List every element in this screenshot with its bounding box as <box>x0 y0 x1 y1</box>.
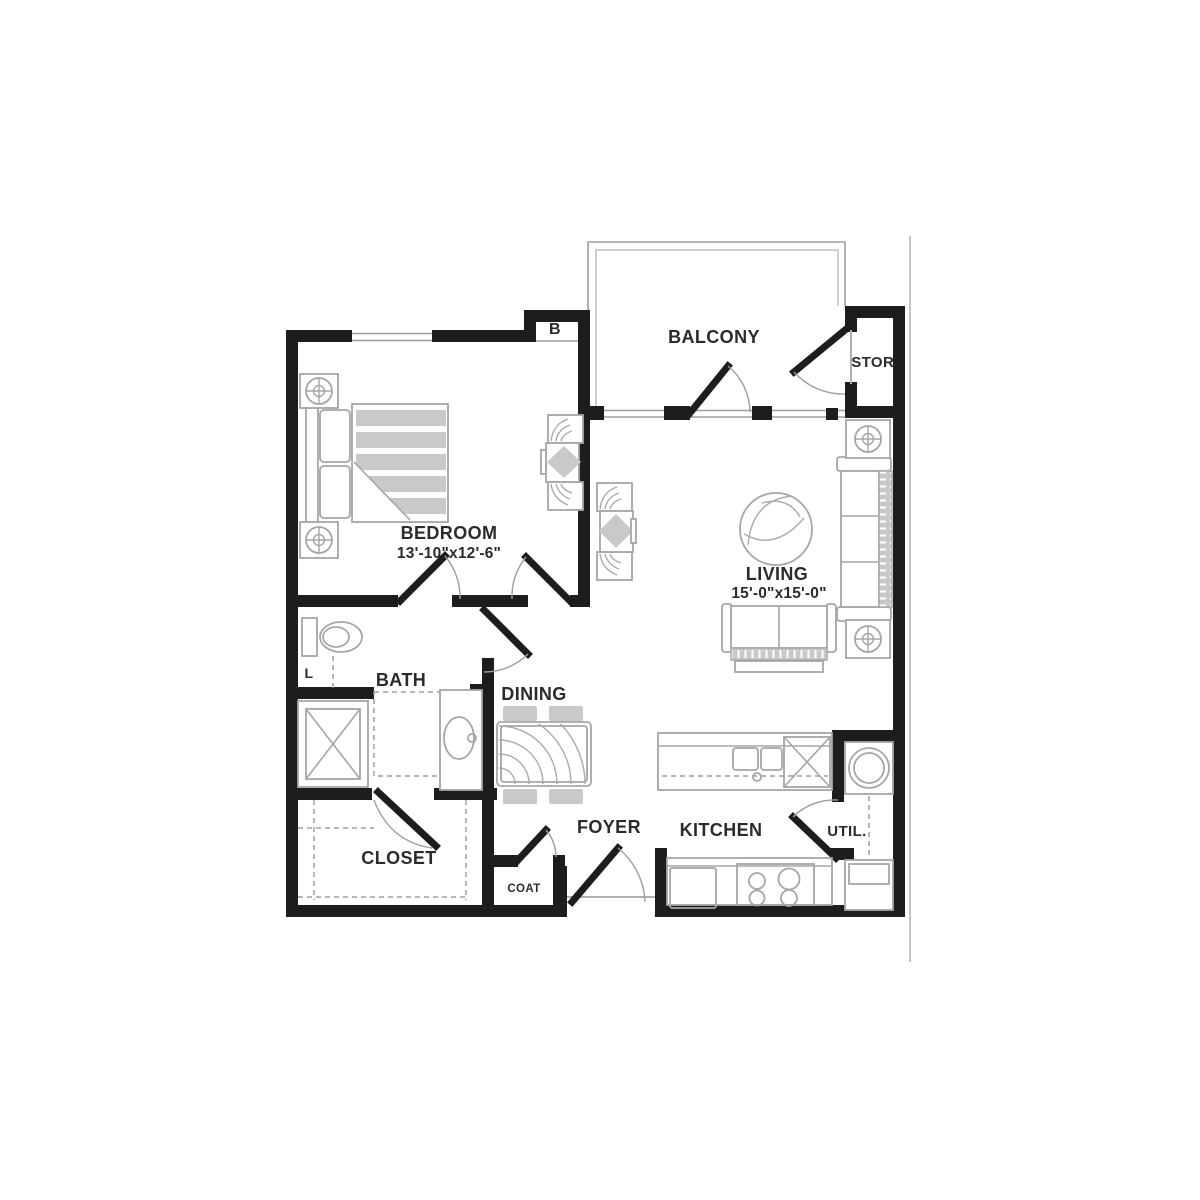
left-exterior-wall <box>286 330 298 917</box>
balcony-door <box>690 366 750 413</box>
bath-dashed-area <box>374 692 440 776</box>
bed-pillow <box>320 410 350 462</box>
lamp-icon <box>306 527 332 553</box>
lamp-icon <box>855 426 881 452</box>
round-side-table <box>740 493 812 565</box>
bedroom-dimensions: 13'-10"x12'-6" <box>397 545 501 562</box>
toilet-tank <box>302 618 317 656</box>
lamp-icon <box>306 378 332 404</box>
loveseat-tufting <box>731 648 827 660</box>
nightstand-bottom <box>300 522 338 558</box>
utility-top-wall <box>832 730 905 742</box>
bedroom-door-left <box>400 556 460 601</box>
dining-chair <box>549 789 583 804</box>
floor-plan-svg: B BALCONY STOR. BEDROOM 13'-10"x12'-6" L… <box>0 0 1200 1200</box>
unit-label: B <box>549 321 561 338</box>
balcony-label: BALCONY <box>668 327 760 347</box>
washer <box>845 742 893 794</box>
entry-door <box>572 848 645 902</box>
living-dimensions: 15'-0"x15'-0" <box>731 585 826 602</box>
end-table-top <box>846 420 890 458</box>
bed-pillow <box>320 466 350 518</box>
sofa-back-tufting <box>879 471 892 607</box>
living-armchair <box>597 483 636 580</box>
living-label: LIVING <box>746 564 808 584</box>
bedroom-label: BEDROOM <box>401 523 498 543</box>
floor-plan-page: B BALCONY STOR. BEDROOM 13'-10"x12'-6" L… <box>0 0 1200 1200</box>
bed-headboard <box>306 404 318 522</box>
dining-label: DINING <box>501 684 566 704</box>
coat-label: COAT <box>507 883 540 895</box>
lamp-icon <box>855 626 881 652</box>
utility-label: UTIL. <box>827 823 867 840</box>
loveseat <box>722 604 836 672</box>
end-table-bottom <box>846 620 890 658</box>
toilet-bowl <box>320 622 362 652</box>
nightstand-top <box>300 374 338 408</box>
foyer-label: FOYER <box>577 817 641 837</box>
dining-chair <box>503 789 537 804</box>
right-exterior-wall <box>893 306 905 917</box>
storage-label: STOR. <box>851 354 899 371</box>
kitchen-label: KITCHEN <box>680 820 763 840</box>
linen-label: L <box>305 665 314 681</box>
bath-label: BATH <box>376 670 426 690</box>
closet-door <box>374 792 436 848</box>
sofa-right <box>837 457 892 621</box>
dining-set <box>497 698 591 804</box>
dryer <box>845 860 893 910</box>
closet-right-wall <box>482 658 494 917</box>
storage-door <box>794 330 845 394</box>
dining-table <box>497 722 591 786</box>
sofa-armrest <box>837 607 891 621</box>
sofa-armrest <box>837 457 891 471</box>
dining-chair <box>549 706 583 721</box>
bedroom-armchair <box>541 415 583 510</box>
bath-fixtures <box>298 618 482 790</box>
coat-door <box>518 830 556 860</box>
bottom-wall-left <box>286 905 567 917</box>
bedroom-door-right <box>512 557 570 601</box>
living-window-wall <box>590 408 845 418</box>
dining-chair <box>503 706 537 721</box>
closet-label: CLOSET <box>361 848 436 868</box>
bed <box>306 404 448 522</box>
